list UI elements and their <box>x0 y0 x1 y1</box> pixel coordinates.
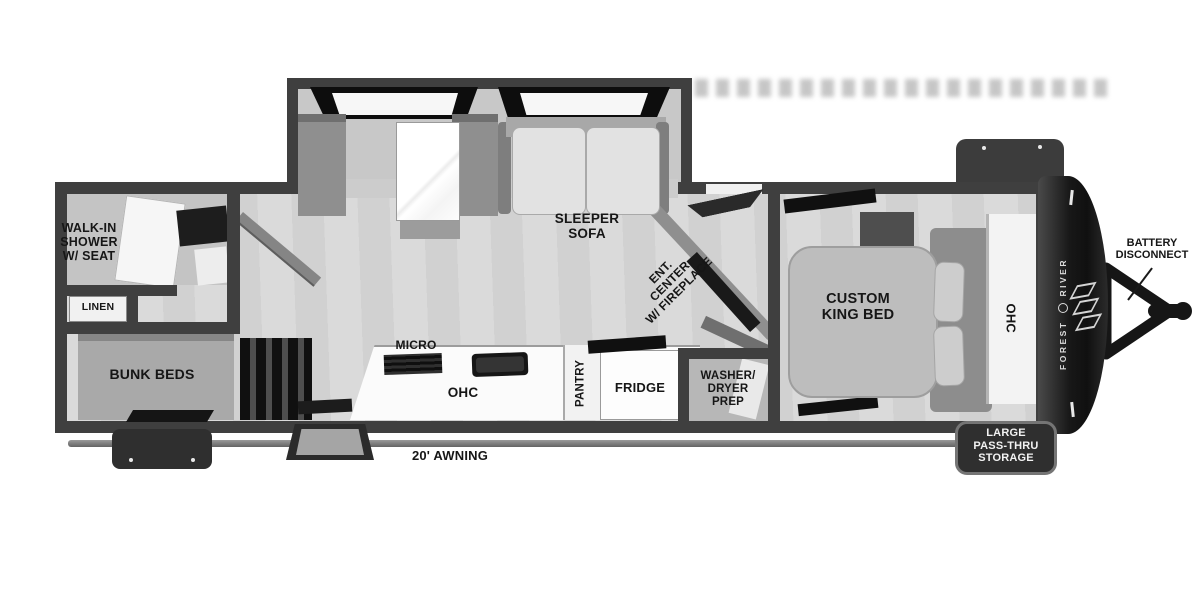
rivet-icon <box>1038 145 1042 149</box>
dinette-bench-front <box>400 219 460 239</box>
window-glass <box>332 93 458 115</box>
wall-washer-top <box>678 348 772 359</box>
forest-river-emblem-icon <box>1058 304 1068 314</box>
wall-bathroom-vertical <box>227 182 240 334</box>
wall-bunkroom-top <box>55 322 240 334</box>
bottom-wall-window <box>126 410 214 422</box>
microwave <box>384 353 443 375</box>
bathroom-counter <box>194 246 230 285</box>
watermark-remnant <box>695 79 1107 97</box>
label-king-bed: CUSTOM KING BED <box>793 291 923 323</box>
window-glass <box>520 93 648 115</box>
label-washer-dryer: WASHER/ DRYER PREP <box>688 370 768 409</box>
step-tread <box>296 429 364 455</box>
label-walk-in-shower: WALK-IN SHOWER W/ SEAT <box>48 221 130 263</box>
sofa-cushion <box>512 127 586 215</box>
label-bunk-beds: BUNK BEDS <box>87 367 217 383</box>
brand-forest: FOREST <box>1058 321 1068 370</box>
wall-shower-bottom <box>55 285 177 296</box>
cooktop-surface <box>476 356 524 373</box>
wall-bedroom-divider <box>768 194 780 421</box>
bedroom-wardrobe <box>860 212 914 248</box>
slide-window-right <box>498 87 670 119</box>
label-pantry: PANTRY <box>575 348 588 418</box>
label-fridge: FRIDGE <box>604 381 676 396</box>
rivet-icon <box>191 458 195 462</box>
dinette-table <box>396 122 460 221</box>
underbody-storage-box <box>112 429 212 469</box>
label-linen: LINEN <box>69 302 127 314</box>
rivet-icon <box>129 458 133 462</box>
rivet-icon <box>982 146 986 150</box>
cooktop <box>472 352 529 377</box>
brand-river: RIVER <box>1058 258 1068 296</box>
dinette-bench-left <box>298 114 346 216</box>
label-pass-thru-storage: LARGE PASS-THRU STORAGE <box>957 427 1055 465</box>
label-sleeper-sofa: SLEEPER SOFA <box>530 211 644 241</box>
label-kitchen-ohc: OHC <box>430 385 496 400</box>
pillow <box>933 261 965 322</box>
sofa-cushion <box>586 127 660 215</box>
awning-rail <box>68 440 1030 447</box>
bathroom-vanity <box>176 205 229 246</box>
entry-steps <box>286 424 374 460</box>
label-battery-disconnect: BATTERY DISCONNECT <box>1106 237 1198 262</box>
label-awning: 20' AWNING <box>398 449 502 464</box>
label-bedroom-ohc: OHC <box>1003 288 1018 348</box>
label-micro: MICRO <box>386 339 446 352</box>
brand-wordmark: FOREST RIVER <box>1055 219 1071 409</box>
pillow <box>933 325 965 386</box>
floorplan-canvas: FOREST RIVER WALK-IN SHOWER W/ SEAT LINE… <box>0 0 1200 600</box>
